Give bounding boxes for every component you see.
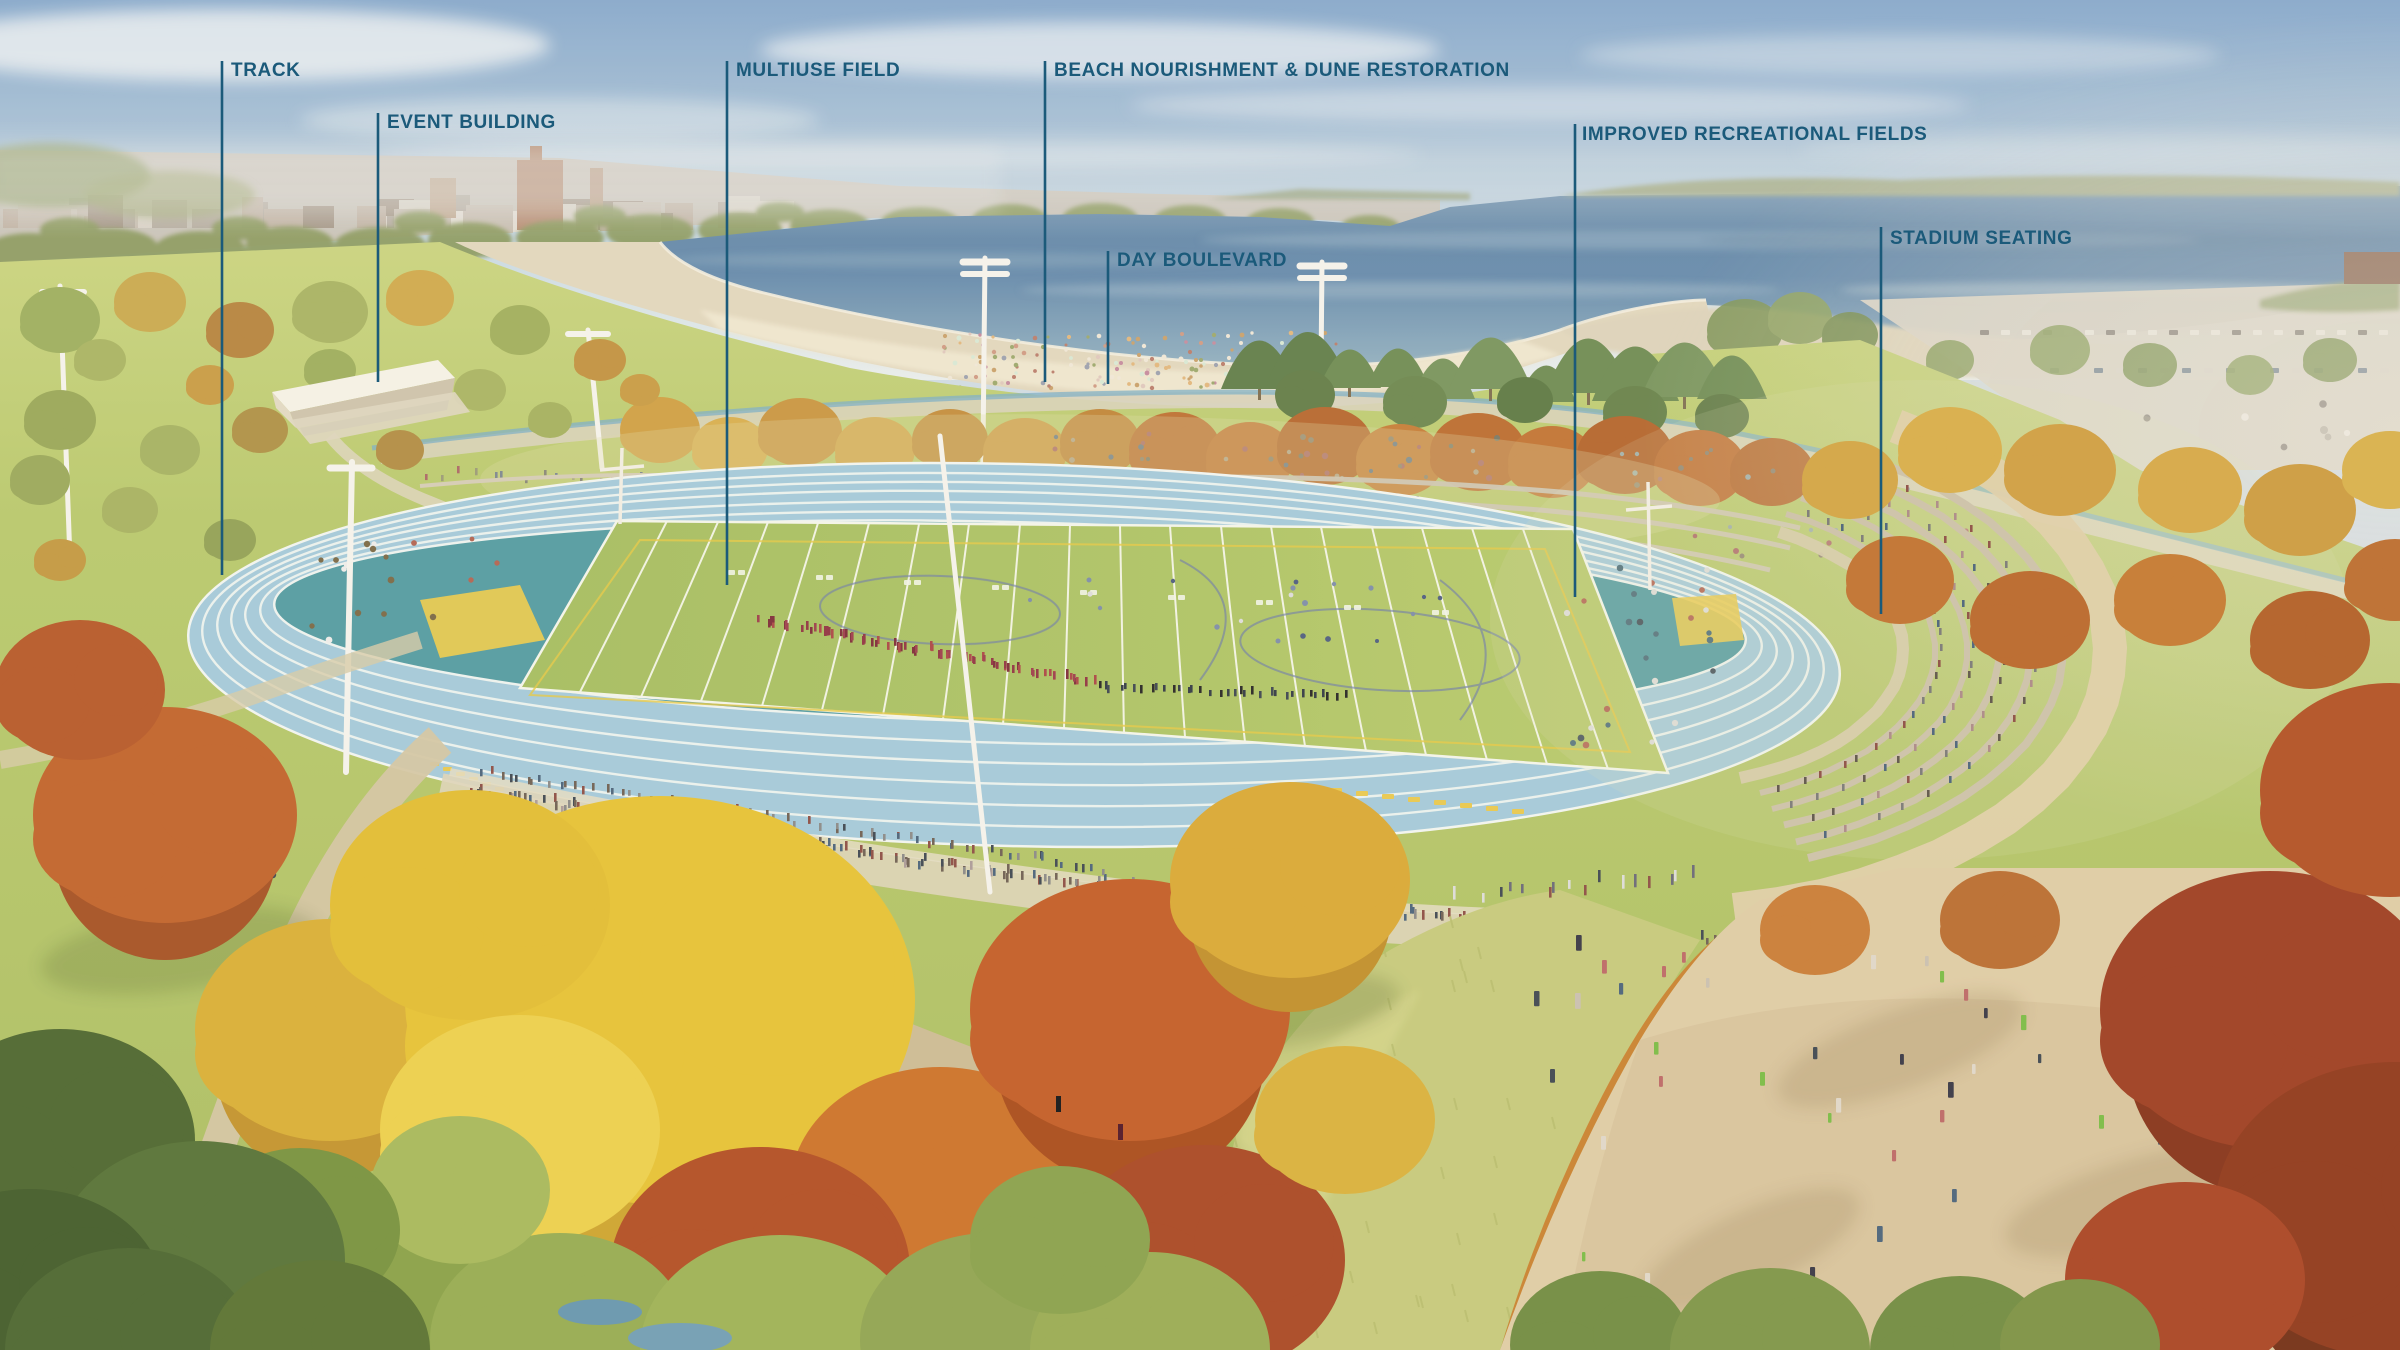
svg-text:DAY BOULEVARD: DAY BOULEVARD — [1117, 250, 1287, 271]
svg-text:BEACH NOURISHMENT & DUNE RESTO: BEACH NOURISHMENT & DUNE RESTORATION — [1054, 60, 1510, 81]
svg-text:EVENT BUILDING: EVENT BUILDING — [387, 112, 556, 133]
svg-text:TRACK: TRACK — [231, 60, 301, 81]
svg-text:STADIUM SEATING: STADIUM SEATING — [1890, 228, 2072, 249]
svg-text:MULTIUSE FIELD: MULTIUSE FIELD — [736, 60, 900, 81]
svg-text:IMPROVED RECREATIONAL FIELDS: IMPROVED RECREATIONAL FIELDS — [1582, 124, 1927, 145]
